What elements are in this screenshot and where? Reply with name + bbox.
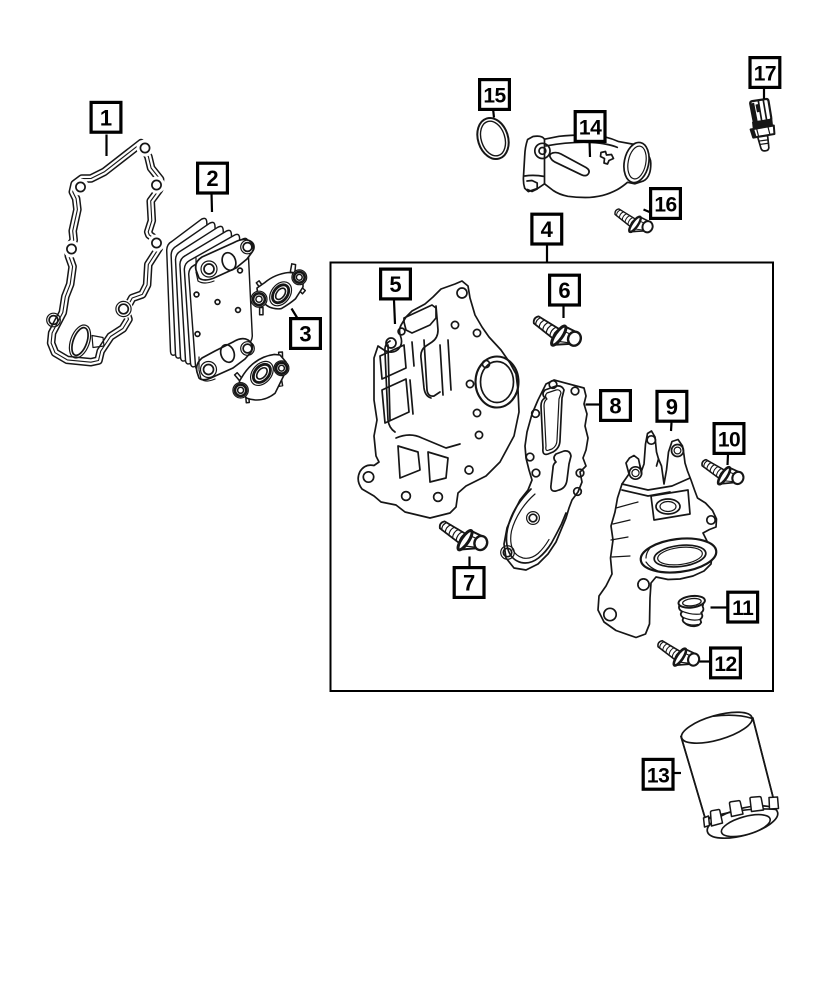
svg-text:4: 4 bbox=[541, 217, 554, 242]
svg-text:9: 9 bbox=[666, 394, 678, 419]
svg-text:8: 8 bbox=[609, 394, 621, 419]
svg-text:13: 13 bbox=[647, 764, 669, 787]
svg-text:12: 12 bbox=[714, 653, 736, 676]
svg-text:3: 3 bbox=[299, 322, 311, 347]
svg-text:16: 16 bbox=[654, 194, 676, 217]
svg-text:11: 11 bbox=[732, 597, 754, 620]
svg-text:1: 1 bbox=[100, 105, 112, 130]
svg-text:2: 2 bbox=[206, 166, 218, 191]
svg-text:6: 6 bbox=[558, 278, 570, 303]
svg-text:17: 17 bbox=[754, 63, 776, 86]
svg-text:5: 5 bbox=[389, 272, 401, 297]
svg-text:15: 15 bbox=[483, 85, 506, 108]
svg-text:10: 10 bbox=[718, 429, 740, 452]
svg-text:14: 14 bbox=[579, 117, 602, 140]
svg-text:7: 7 bbox=[463, 571, 475, 596]
